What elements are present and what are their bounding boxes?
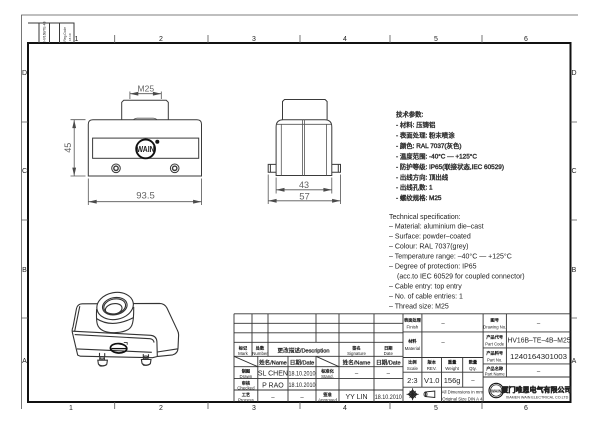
svg-text:REV.: REV.	[427, 366, 437, 371]
svg-text:WAIN: WAIN	[137, 145, 155, 154]
svg-text:产品料号: 产品料号	[486, 350, 503, 357]
svg-text:姓名/Name: 姓名/Name	[343, 358, 371, 366]
svg-text:材料: 材料	[408, 337, 417, 344]
svg-text:表面处理: 表面处理	[404, 317, 422, 324]
svg-text:Checked: Checked	[237, 386, 255, 391]
svg-text:– Temperature range: –40°C —: – Temperature range: –40°C — +125°C	[389, 253, 512, 261]
svg-text:D: D	[571, 70, 576, 77]
svg-text:5: 5	[434, 405, 438, 412]
svg-text:姓名/Name: 姓名/Name	[259, 358, 287, 366]
svg-text:156g: 156g	[444, 376, 461, 385]
svg-text:4: 4	[343, 36, 347, 43]
svg-text:2: 2	[159, 405, 163, 412]
svg-text:SL CHEN: SL CHEN	[258, 371, 288, 378]
svg-text:M25: M25	[138, 83, 155, 93]
svg-text:Technical specification:: Technical specification:	[389, 214, 461, 221]
svg-text:1: 1	[69, 405, 73, 412]
svg-text:Original Size DIN A 4: Original Size DIN A 4	[442, 396, 483, 401]
svg-text:(acc.to IEC 60529 for coupled: (acc.to IEC 60529 for coupled connector)	[397, 274, 525, 281]
svg-text:18.10.2010: 18.10.2010	[375, 395, 403, 401]
svg-text:Mark: Mark	[238, 351, 249, 356]
svg-text:45: 45	[63, 143, 73, 153]
svg-text:比例: 比例	[408, 359, 416, 366]
svg-text:Drawn: Drawn	[240, 374, 253, 379]
svg-text:43: 43	[299, 180, 309, 190]
svg-text:- 防护等级: IP65(联接状态,IEC 60529): - 防护等级: IP65(联接状态,IEC 60529)	[396, 162, 504, 171]
svg-text:Material: Material	[405, 346, 421, 351]
svg-text:– No. of cable entries: 1: – No. of cable entries: 1	[389, 294, 463, 301]
svg-text:3: 3	[252, 405, 256, 412]
svg-text:– Cable entry: top entry: – Cable entry: top entry	[389, 284, 462, 291]
svg-text:更改描述/Description: 更改描述/Description	[278, 347, 330, 355]
svg-text:XIAMEN WAIN ELECTRICAL CO.LTD: XIAMEN WAIN ELECTRICAL CO.LTD	[506, 396, 569, 400]
svg-text:2:3: 2:3	[407, 376, 417, 385]
svg-text:1: 1	[75, 36, 79, 43]
svg-text:C: C	[22, 168, 27, 175]
svg-text:- 出线孔数: 1: - 出线孔数: 1	[396, 183, 433, 192]
svg-text:- 材料: 压铸铝: - 材料: 压铸铝	[396, 120, 435, 129]
svg-text:Approved: Approved	[318, 398, 337, 403]
svg-text:Scale: Scale	[407, 366, 419, 371]
svg-text:重量: 重量	[448, 359, 456, 366]
svg-text:- 表面处理: 粉末喷涂: - 表面处理: 粉末喷涂	[396, 131, 455, 140]
svg-text:2: 2	[159, 36, 163, 43]
svg-text:WAIN: WAIN	[491, 388, 502, 394]
svg-text:HV16B/TE-4B: HV16B/TE-4B	[43, 21, 47, 41]
svg-text:3: 3	[252, 36, 256, 43]
svg-text:B: B	[572, 267, 577, 274]
svg-text:D: D	[22, 70, 27, 77]
svg-text:Part No.: Part No.	[487, 357, 502, 362]
svg-text:All Dimensions in mm: All Dimensions in mm	[442, 390, 484, 395]
svg-text:A: A	[22, 358, 27, 365]
svg-text:1240164301003: 1240164301003	[510, 352, 567, 361]
svg-text:P RAO: P RAO	[262, 382, 284, 389]
svg-text:18.10.2010: 18.10.2010	[289, 372, 317, 378]
svg-text:HV16B–TE–4B–M25: HV16B–TE–4B–M25	[508, 336, 571, 345]
svg-text:日期/Date: 日期/Date	[376, 359, 401, 366]
svg-text:– Material: aluminium die–cas: – Material: aluminium die–cast	[389, 224, 484, 231]
svg-text:B: B	[22, 267, 27, 274]
svg-text:18.10: 18.10	[68, 33, 72, 41]
svg-text:Qty.: Qty.	[469, 366, 477, 371]
svg-text:– Surface: powder–coated: – Surface: powder–coated	[389, 234, 471, 241]
svg-text:Part Code: Part Code	[485, 341, 505, 346]
svg-text:Drawing No.: Drawing No.	[483, 325, 506, 330]
svg-text:18.10.2010: 18.10.2010	[289, 383, 317, 389]
svg-text:V1.0: V1.0	[424, 376, 439, 385]
svg-text:工艺: 工艺	[242, 392, 250, 397]
svg-text:Weight: Weight	[445, 366, 459, 371]
svg-text:A: A	[572, 358, 577, 365]
svg-text:- 颜色: RAL 7037(灰色): - 颜色: RAL 7037(灰色)	[396, 141, 461, 150]
svg-text:C: C	[571, 168, 576, 175]
svg-text:版本: 版本	[428, 359, 437, 366]
svg-text:数量: 数量	[469, 359, 477, 366]
svg-text:- 出线方向: 顶出线: - 出线方向: 顶出线	[396, 173, 449, 182]
svg-text:5: 5	[434, 36, 438, 43]
svg-text:6: 6	[524, 405, 528, 412]
svg-text:Signature: Signature	[347, 351, 366, 356]
svg-text:– Colour: RAL 7037(grey): – Colour: RAL 7037(grey)	[389, 244, 469, 251]
svg-text:产品代号: 产品代号	[486, 334, 503, 341]
svg-text:Number: Number	[252, 351, 268, 356]
svg-text:日期/Date: 日期/Date	[290, 359, 315, 366]
svg-text:– Degree of protection: IP65: – Degree of protection: IP65	[389, 264, 477, 271]
svg-text:- 螺纹规格: M25: - 螺纹规格: M25	[396, 193, 442, 202]
svg-text:6: 6	[524, 36, 528, 43]
svg-text:Date: Date	[384, 351, 394, 356]
svg-text:93.5: 93.5	[136, 190, 155, 201]
svg-text:Stand.: Stand.	[321, 374, 334, 379]
svg-text:Reg.Code: Reg.Code	[63, 27, 67, 42]
svg-text:- 温度范围: -40°C — +125°C: - 温度范围: -40°C — +125°C	[396, 152, 477, 161]
svg-text:厦门唯恩电气有限公司: 厦门唯恩电气有限公司	[502, 385, 572, 394]
svg-text:YY LIN: YY LIN	[345, 394, 367, 401]
svg-text:57: 57	[299, 191, 310, 202]
svg-text:Finish: Finish	[407, 325, 419, 330]
svg-text:– Thread size: M25: – Thread size: M25	[389, 304, 449, 311]
svg-text:Part Name: Part Name	[485, 372, 506, 377]
svg-text:Process: Process	[238, 398, 255, 403]
svg-text:技术参数:: 技术参数:	[396, 110, 424, 119]
svg-text:4: 4	[343, 405, 347, 412]
